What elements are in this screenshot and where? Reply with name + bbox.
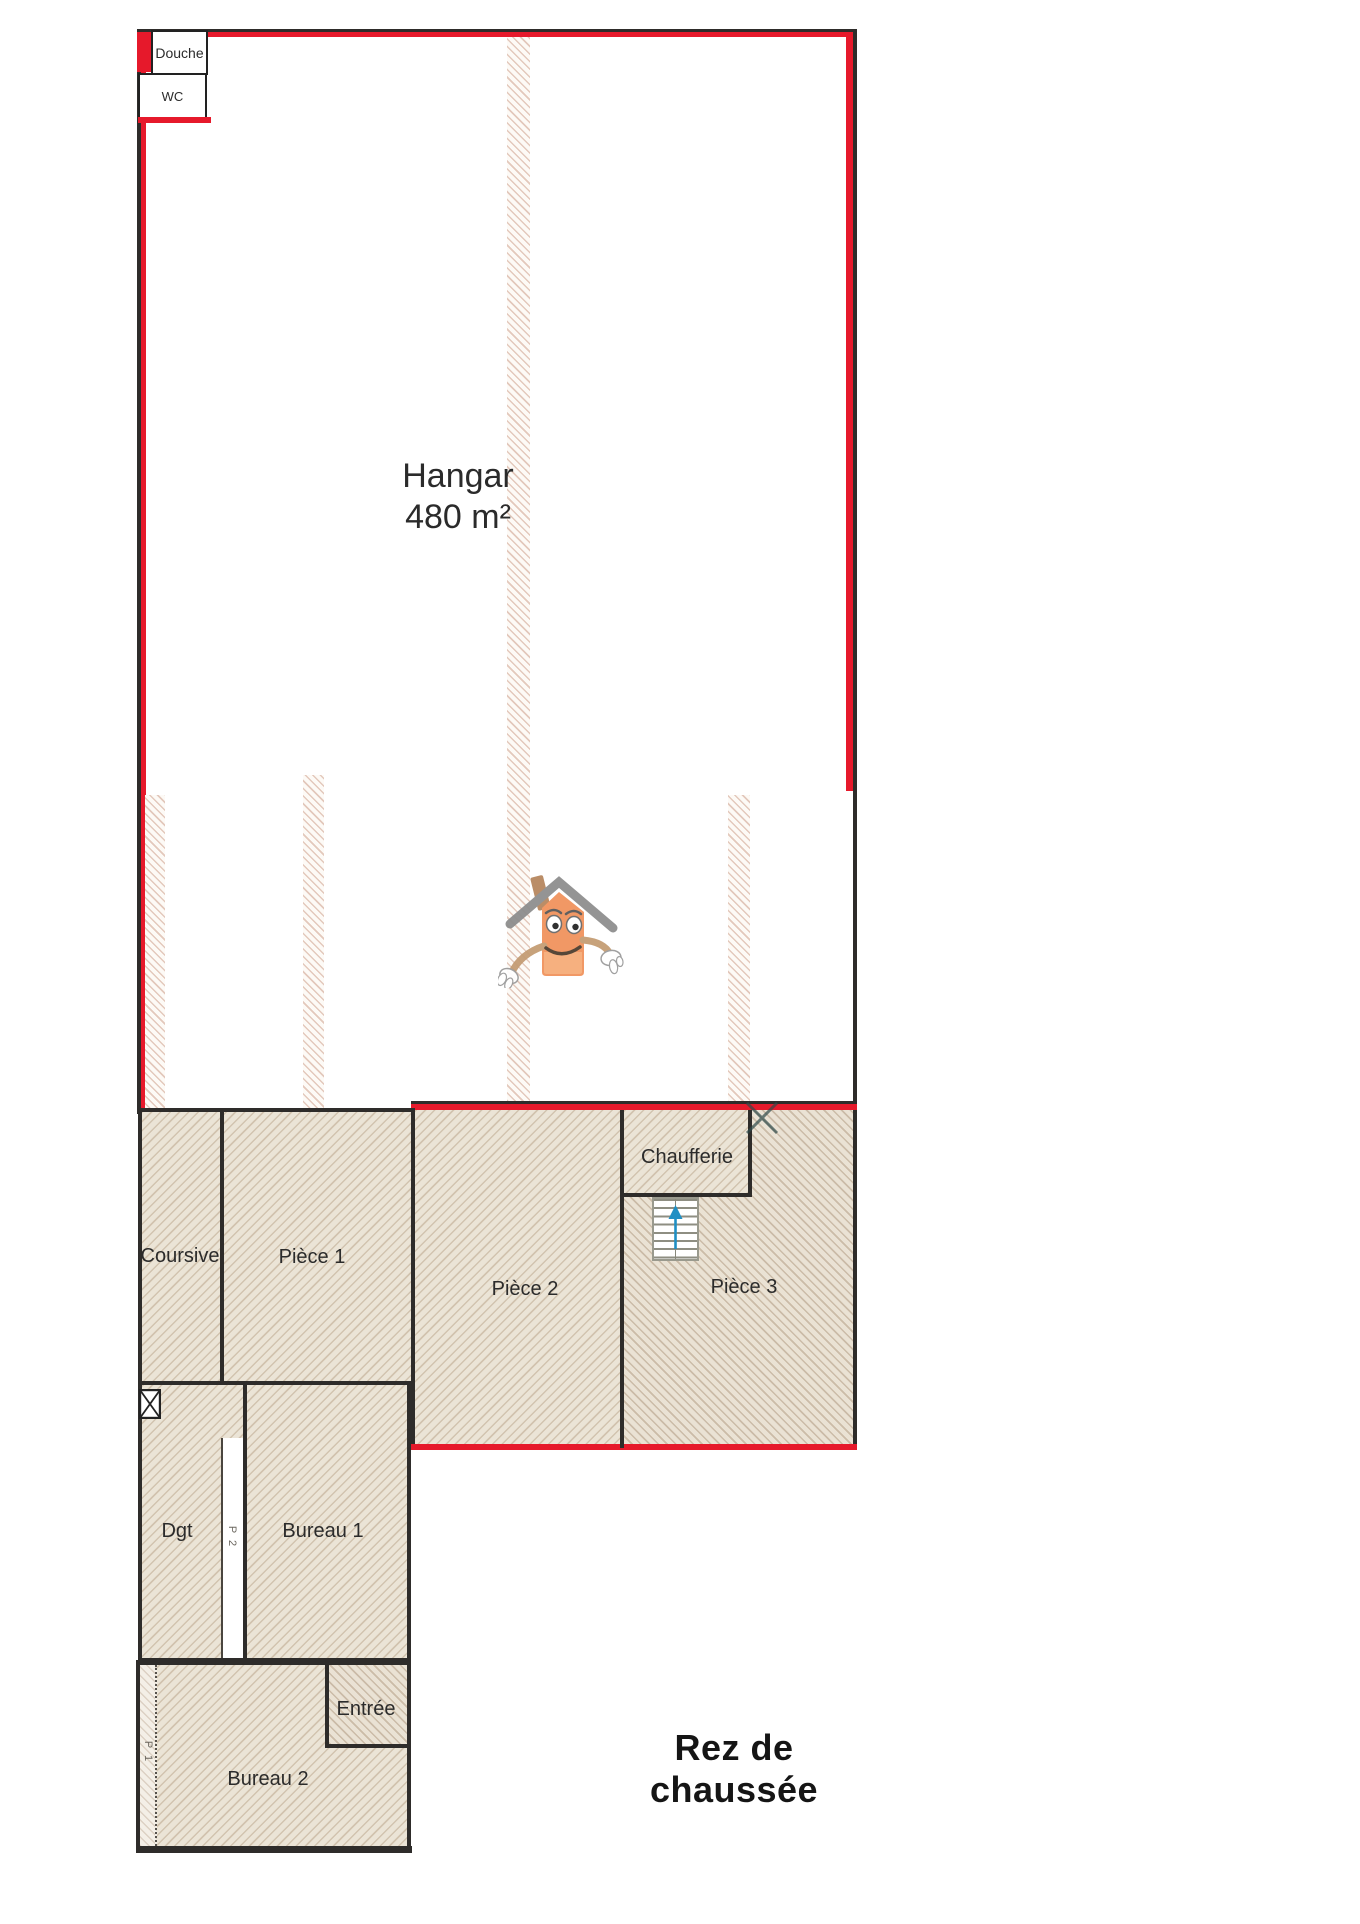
hangar-label: Hangar (358, 456, 558, 497)
wall-segment (407, 1381, 411, 1662)
room-label-piece3: Pièce 3 (684, 1276, 804, 1298)
hatched-post-strip (728, 795, 750, 1110)
wall-segment (407, 1444, 857, 1450)
wall-segment (136, 1660, 411, 1665)
hatched-post-strip (303, 775, 324, 1110)
room-label-coursive: Coursive (130, 1245, 230, 1267)
wall-segment (136, 1660, 140, 1853)
hangar-area-label: 480 m² (358, 497, 558, 538)
room-label-wc: WC (162, 89, 184, 104)
wall-segment (243, 1385, 247, 1658)
room-label-piece2: Pièce 2 (465, 1278, 585, 1300)
wall-segment (136, 1846, 412, 1853)
wall-segment (407, 1660, 411, 1853)
stair-up-arrow-icon (652, 1197, 699, 1261)
room-label-piece1: Pièce 1 (252, 1246, 372, 1268)
wall-segment (325, 1744, 411, 1748)
wall-segment (138, 117, 211, 123)
room-label-dgt: Dgt (127, 1520, 227, 1542)
wall-segment (138, 32, 857, 37)
door-label-p2: P 2 (226, 1517, 238, 1557)
floor-plan: Douche WC Hangar 480 m² (0, 0, 1360, 1924)
hatched-post-strip (145, 795, 165, 1112)
room-label-douche: Douche (155, 45, 203, 61)
door-swing-cross-icon (744, 1100, 780, 1136)
room-douche: Douche (151, 30, 208, 75)
wall-segment (411, 1104, 857, 1110)
room-wc: WC (138, 73, 207, 119)
room-label-bureau1: Bureau 1 (263, 1520, 383, 1542)
page-title: Rez de chaussée (608, 1727, 860, 1811)
wall-segment (853, 29, 857, 1450)
door-label-p1: P 1 (142, 1732, 154, 1772)
house-mascot-logo-icon (498, 862, 626, 988)
wall-segment (411, 1108, 415, 1450)
room-label-chaufferie: Chaufferie (627, 1146, 747, 1168)
wall-segment (846, 33, 853, 791)
wall-segment (138, 1108, 415, 1112)
room-label-bureau2: Bureau 2 (208, 1768, 328, 1790)
wall-segment (137, 32, 152, 72)
window-x-icon (139, 1389, 161, 1419)
room-label-entree: Entrée (324, 1698, 408, 1720)
wall-segment (620, 1110, 624, 1448)
